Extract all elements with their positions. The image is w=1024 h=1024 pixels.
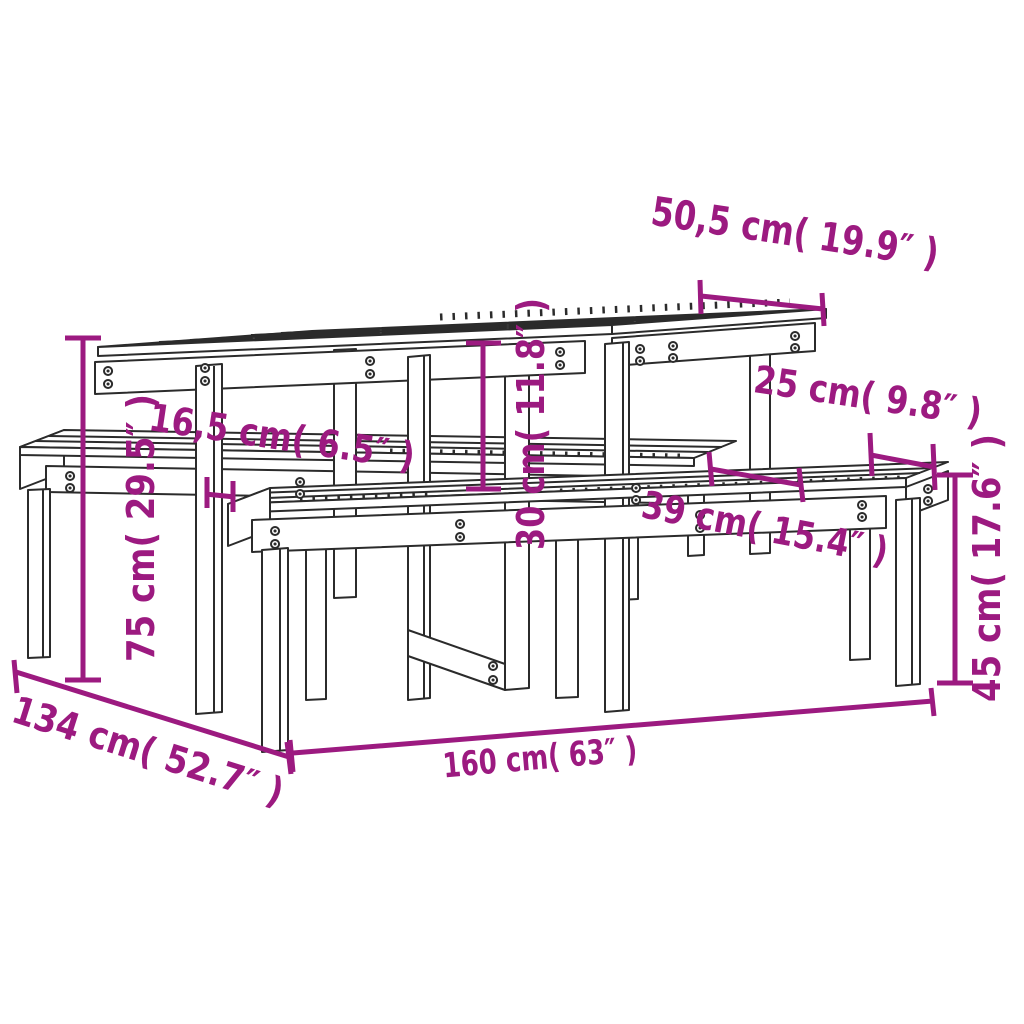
table-leg-back-left xyxy=(334,349,356,598)
far-bench-leg-left xyxy=(28,489,50,658)
diagram-page: 50,5 cm( 19.9″ ) 25 cm( 9.8″ ) 16,5 cm( … xyxy=(0,0,1024,1024)
front-bench-leg-back-left xyxy=(306,529,326,700)
label-leg-inset: 16,5 cm( 6.5″ ) xyxy=(146,395,418,478)
picnic-table-dimension-diagram: 50,5 cm( 19.9″ ) 25 cm( 9.8″ ) 16,5 cm( … xyxy=(0,0,1024,1024)
label-table-to-bench-clearance: 30 cm( 11.8″ ) xyxy=(509,298,553,550)
front-bench-leg-back-mid xyxy=(556,521,578,698)
label-table-height: 75 cm( 29.5″ ) xyxy=(119,394,163,662)
label-tabletop-depth: 50,5 cm( 19.9″ ) xyxy=(648,189,942,277)
label-bench-seat-depth: 25 cm( 9.8″ ) xyxy=(751,357,985,435)
front-bench-leg-front-left xyxy=(262,548,288,752)
label-bench-height: 45 cm( 17.6″ ) xyxy=(965,434,1009,702)
label-total-depth: 134 cm( 52.7″ ) xyxy=(7,688,289,815)
front-bench-leg-front-right xyxy=(896,498,920,686)
